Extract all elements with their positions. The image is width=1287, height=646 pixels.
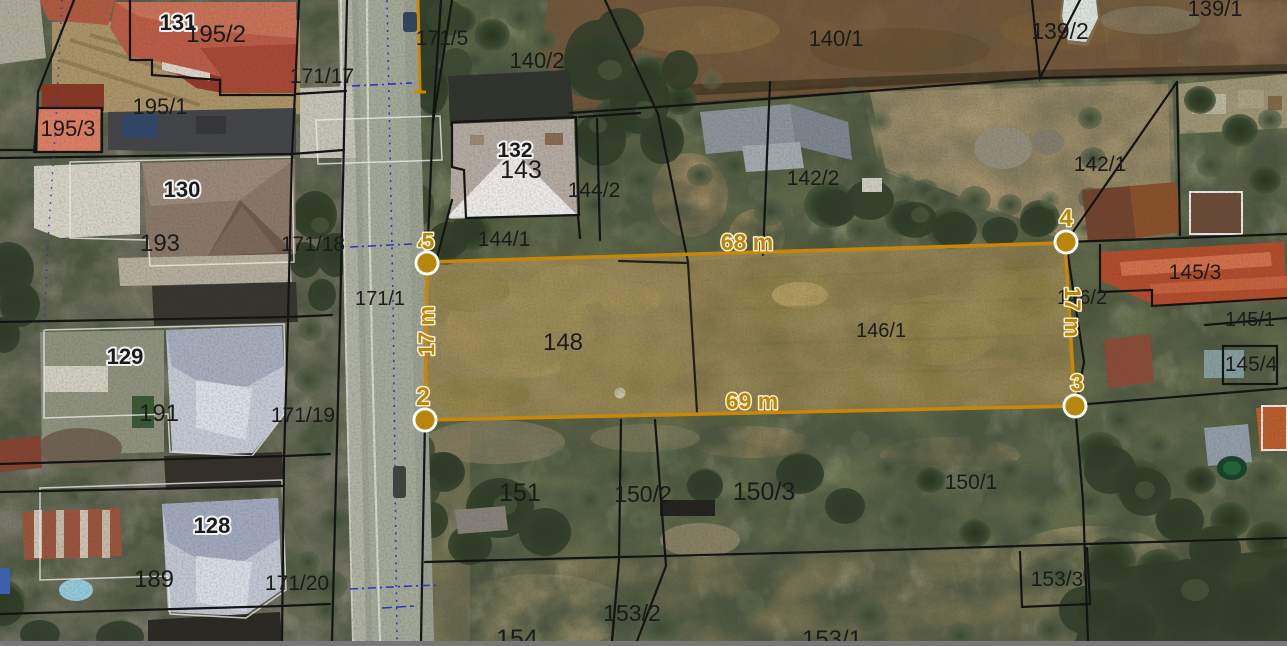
- svg-text:195/3: 195/3: [40, 116, 95, 141]
- svg-text:143: 143: [500, 156, 542, 184]
- svg-text:145/4: 145/4: [1225, 353, 1278, 376]
- svg-text:142/1: 142/1: [1074, 153, 1127, 176]
- svg-text:171/20: 171/20: [265, 572, 329, 595]
- svg-text:140/2: 140/2: [509, 48, 564, 73]
- svg-text:171/17: 171/17: [290, 65, 354, 88]
- svg-text:68 m: 68 m: [721, 229, 773, 255]
- svg-text:191: 191: [139, 400, 179, 427]
- svg-text:2: 2: [416, 383, 430, 411]
- svg-text:195/1: 195/1: [132, 94, 187, 119]
- svg-text:139/1: 139/1: [1187, 0, 1242, 21]
- svg-text:69 m: 69 m: [726, 388, 778, 414]
- svg-text:150/1: 150/1: [945, 471, 998, 494]
- svg-text:150/3: 150/3: [733, 478, 796, 506]
- svg-text:151: 151: [499, 479, 541, 507]
- svg-text:189: 189: [134, 566, 174, 593]
- svg-text:145/3: 145/3: [1169, 261, 1222, 284]
- svg-text:144/2: 144/2: [568, 179, 621, 202]
- svg-text:146/1: 146/1: [856, 320, 906, 342]
- svg-text:142/2: 142/2: [787, 167, 840, 190]
- svg-text:145/1: 145/1: [1225, 309, 1275, 331]
- svg-text:140/1: 140/1: [808, 26, 863, 51]
- svg-text:171/5: 171/5: [416, 27, 469, 50]
- svg-text:144/1: 144/1: [478, 228, 531, 251]
- svg-text:148: 148: [543, 329, 583, 356]
- svg-text:153/1: 153/1: [802, 626, 862, 641]
- svg-text:193: 193: [140, 230, 180, 257]
- svg-text:153/3: 153/3: [1031, 568, 1084, 591]
- svg-text:129: 129: [107, 344, 144, 369]
- svg-text:150/2: 150/2: [614, 481, 672, 507]
- svg-text:17 m: 17 m: [414, 306, 439, 356]
- svg-text:130: 130: [164, 177, 201, 202]
- svg-text:3: 3: [1070, 370, 1083, 397]
- svg-text:153/2: 153/2: [603, 600, 661, 626]
- svg-text:17 m: 17 m: [1060, 287, 1085, 337]
- svg-text:171/18: 171/18: [281, 233, 345, 256]
- svg-text:139/2: 139/2: [1031, 18, 1089, 44]
- svg-text:128: 128: [194, 513, 231, 538]
- svg-text:4: 4: [1059, 205, 1073, 232]
- svg-text:171/1: 171/1: [355, 288, 405, 310]
- svg-text:5: 5: [422, 228, 435, 254]
- svg-text:154: 154: [496, 625, 538, 641]
- svg-text:195/2: 195/2: [186, 21, 246, 48]
- svg-text:171/19: 171/19: [271, 404, 335, 427]
